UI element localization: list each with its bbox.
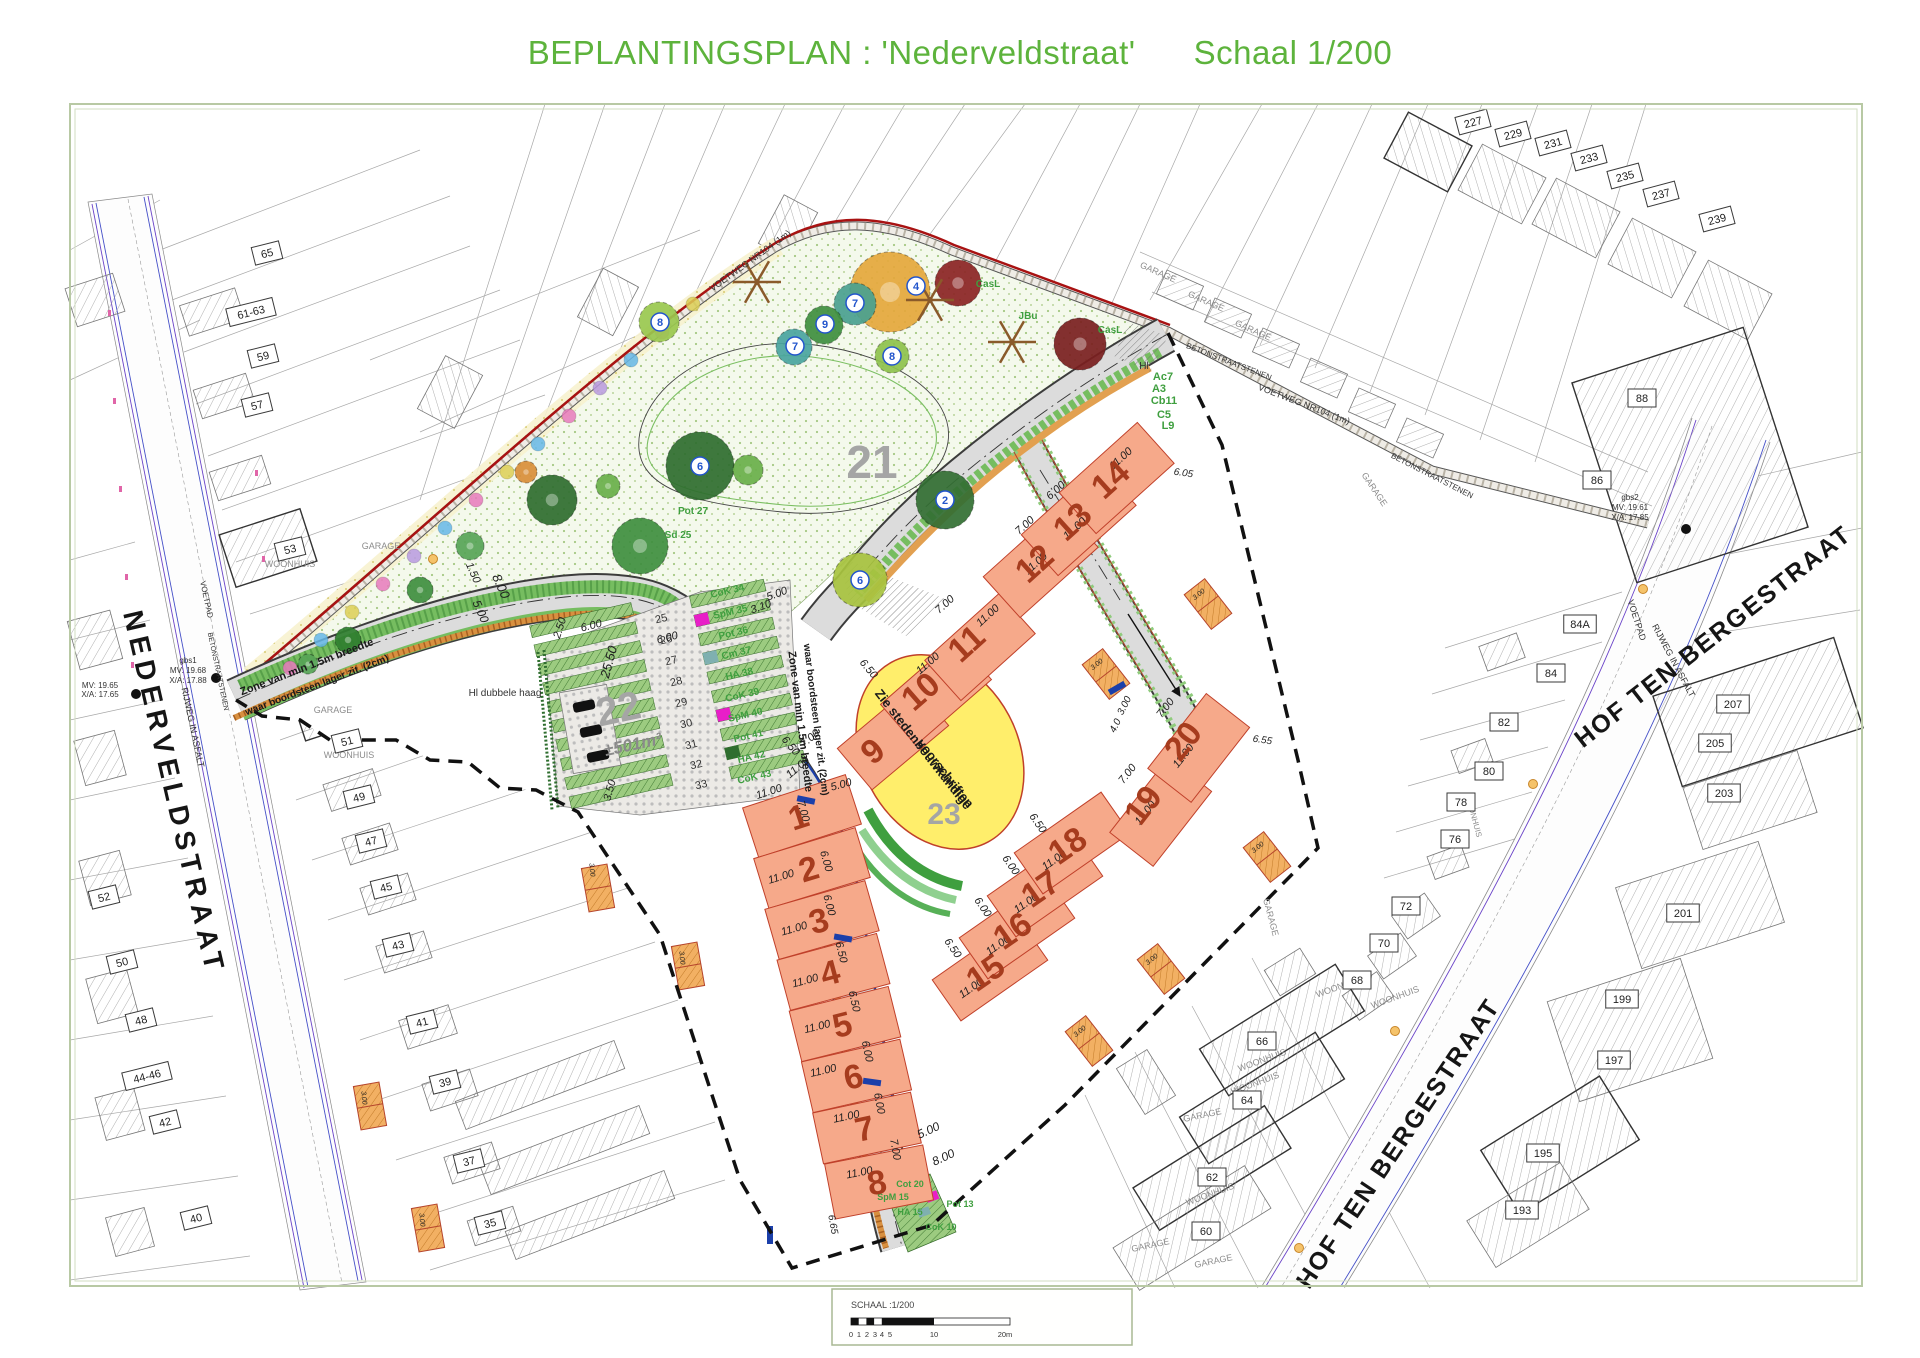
tree-icon bbox=[612, 518, 668, 574]
plan-label: GARAGE bbox=[1360, 471, 1390, 509]
shrub-icon bbox=[314, 633, 328, 647]
plan-label: 3.00 bbox=[417, 1213, 425, 1227]
parcel-number: 70 bbox=[1378, 938, 1390, 950]
benchmark-point bbox=[1681, 524, 1691, 534]
shrub-icon bbox=[531, 437, 545, 451]
tree-number-badge: 6 bbox=[851, 571, 869, 589]
shrub-icon bbox=[438, 521, 452, 535]
parcel-box: 227 bbox=[1455, 109, 1491, 135]
plan-label: 3.00 bbox=[587, 863, 595, 877]
scale-bar: SCHAAL :1/200 0123451020m bbox=[832, 1289, 1132, 1345]
plan-label: Hl dubbele haag bbox=[469, 688, 542, 699]
parcel-number: 84A bbox=[1570, 619, 1590, 631]
tree-center bbox=[546, 494, 559, 507]
garage-box bbox=[411, 1204, 444, 1252]
parcel-box: 70 bbox=[1370, 934, 1398, 952]
shrub-icon bbox=[407, 549, 421, 563]
tree-center bbox=[467, 543, 474, 550]
parcel-box: 197 bbox=[1598, 1051, 1631, 1069]
existing-building bbox=[95, 1088, 145, 1141]
existing-building bbox=[1300, 358, 1347, 398]
plan-label: 21 bbox=[846, 436, 897, 488]
tree-icon bbox=[515, 461, 537, 483]
plan-label: MV: 19.61 bbox=[1612, 503, 1649, 512]
parcel-number: 64 bbox=[1241, 1095, 1253, 1107]
parcel-number: 193 bbox=[1513, 1205, 1531, 1217]
parcel-box: 231 bbox=[1535, 130, 1571, 156]
tree-number-badge: 7 bbox=[846, 294, 864, 312]
scale-tick-label: 0 bbox=[849, 1330, 853, 1339]
parcel-box: 42 bbox=[149, 1110, 181, 1134]
tree-center bbox=[744, 466, 752, 474]
tree-center bbox=[605, 483, 611, 489]
plan-label: WOONHUIS bbox=[265, 559, 316, 569]
plan-label: HOF TEN BERGESTRAAT bbox=[1291, 993, 1506, 1293]
scale-tick-label: 4 bbox=[880, 1330, 884, 1339]
parcel-box: 207 bbox=[1717, 695, 1750, 713]
parcel-number: 82 bbox=[1498, 717, 1510, 729]
existing-building bbox=[1532, 178, 1620, 258]
tree-center bbox=[417, 587, 424, 594]
parcel-box: 40 bbox=[180, 1206, 212, 1230]
tree-number-badge: 2 bbox=[936, 491, 954, 509]
parcel-box: 235 bbox=[1607, 163, 1643, 189]
plan-label: 23 bbox=[927, 798, 960, 831]
survey-point bbox=[429, 555, 438, 564]
parcel-number: 88 bbox=[1636, 393, 1648, 405]
tree-number-badge: 8 bbox=[883, 347, 901, 365]
tree-icon bbox=[596, 474, 620, 498]
branch-center bbox=[1009, 339, 1015, 345]
plan-label: gbs2 bbox=[1621, 493, 1639, 502]
existing-building bbox=[577, 268, 638, 335]
parcel-box: 229 bbox=[1495, 121, 1531, 147]
parcel-box: 68 bbox=[1343, 971, 1371, 989]
shrub-icon bbox=[593, 381, 607, 395]
parcel-box: 201 bbox=[1667, 904, 1700, 922]
parcel-number: 86 bbox=[1591, 475, 1603, 487]
parcel-number: 199 bbox=[1613, 994, 1631, 1006]
plan-label: WOONHUIS bbox=[324, 750, 375, 760]
plan-label: MV: 19.68 bbox=[170, 666, 207, 675]
survey-point bbox=[1529, 780, 1538, 789]
parcel-box: 239 bbox=[1699, 206, 1735, 232]
plan-label: X/A: 17.65 bbox=[81, 690, 119, 699]
tree-center bbox=[1074, 338, 1087, 351]
tree-number-badge: 9 bbox=[816, 315, 834, 333]
scale-tick-label: 5 bbox=[888, 1330, 892, 1339]
tree-number-badge: 6 bbox=[691, 457, 709, 475]
shrub-icon bbox=[562, 409, 576, 423]
plan-label: Hl bbox=[1139, 361, 1148, 372]
site-plan-drawing: NEDERVELDSTRAATRIJWEG IN ASFALTVOETPADBE… bbox=[0, 0, 1920, 1358]
tree-center bbox=[523, 469, 529, 475]
survey-point bbox=[1639, 585, 1648, 594]
tree-number: 6 bbox=[697, 461, 703, 473]
shrub-icon bbox=[345, 605, 359, 619]
plan-label: MV: 19.65 bbox=[82, 681, 119, 690]
parcel-number: 72 bbox=[1400, 901, 1412, 913]
plan-label: Cb11 bbox=[1151, 395, 1177, 407]
parcel-box: 193 bbox=[1506, 1201, 1539, 1219]
parcel-box: 78 bbox=[1447, 793, 1475, 811]
plan-label: CoK 10 bbox=[925, 1222, 956, 1232]
plan-label: CasL bbox=[1098, 325, 1122, 336]
plan-label: 3.00 bbox=[359, 1091, 367, 1105]
branch-center bbox=[754, 279, 760, 285]
parcel-number: 80 bbox=[1483, 766, 1495, 778]
shrub-icon bbox=[500, 465, 514, 479]
parcel-number: 197 bbox=[1605, 1055, 1623, 1067]
tree-number-badge: 4 bbox=[907, 277, 925, 295]
parcel-number: 84 bbox=[1545, 668, 1557, 680]
plan-label: A3 bbox=[1152, 383, 1166, 395]
parcel-box: 84A bbox=[1564, 615, 1597, 633]
scale-tick-label: 10 bbox=[930, 1330, 938, 1339]
plan-label: 3.00 bbox=[677, 951, 685, 965]
tree-icon bbox=[456, 532, 484, 560]
existing-building bbox=[417, 356, 482, 429]
tree-center bbox=[880, 282, 900, 302]
parcel-number: 205 bbox=[1706, 738, 1724, 750]
existing-building bbox=[1116, 1050, 1175, 1115]
plan-label: Pot 13 bbox=[946, 1199, 973, 1209]
parcel-box: 88 bbox=[1628, 389, 1656, 407]
shrub-icon bbox=[469, 493, 483, 507]
tree-number: 7 bbox=[852, 298, 858, 310]
existing-building bbox=[480, 1106, 649, 1195]
tree-number: 8 bbox=[889, 351, 895, 363]
parcel-box: 50 bbox=[106, 950, 138, 974]
scale-tick-label: 20m bbox=[998, 1330, 1013, 1339]
plan-label: 22 bbox=[592, 683, 645, 735]
existing-building bbox=[67, 610, 122, 670]
parcel-number: 207 bbox=[1724, 699, 1742, 711]
plan-label: GARAGE bbox=[362, 541, 401, 551]
parcel-box: 64 bbox=[1233, 1091, 1261, 1109]
plan-label: L9 bbox=[1162, 420, 1175, 432]
plan-sheet: BEPLANTINGSPLAN : 'Nederveldstraat' Scha… bbox=[0, 0, 1920, 1358]
plan-label: CasL bbox=[976, 279, 1000, 290]
survey-point bbox=[1295, 1244, 1304, 1253]
utility-marker bbox=[119, 486, 122, 492]
parcel-box: 84 bbox=[1537, 664, 1565, 682]
tree-number: 7 bbox=[792, 341, 798, 353]
plan-label: gbs1 bbox=[179, 656, 197, 665]
parcel-box: 60 bbox=[1192, 1222, 1220, 1240]
parcel-box: 72 bbox=[1392, 897, 1420, 915]
plan-label: X/A: 17.88 bbox=[169, 676, 207, 685]
plan-label: GARAGE bbox=[1139, 260, 1178, 285]
plan-label: Pot 27 bbox=[678, 506, 708, 517]
tree-center bbox=[633, 539, 647, 553]
plan-label: Ac7 bbox=[1153, 371, 1173, 383]
existing-building bbox=[209, 455, 271, 501]
tree-number: 6 bbox=[857, 575, 863, 587]
existing-building bbox=[1427, 845, 1469, 880]
existing-building bbox=[74, 730, 126, 785]
tree-number: 8 bbox=[657, 317, 663, 329]
existing-building bbox=[106, 1208, 155, 1257]
plan-label: JBu bbox=[1019, 311, 1038, 322]
parcel-box: 237 bbox=[1643, 181, 1679, 207]
parcel-box: 76 bbox=[1441, 830, 1469, 848]
existing-building bbox=[1547, 958, 1713, 1101]
tree-number: 4 bbox=[913, 281, 920, 293]
plan-label: GARAGE bbox=[314, 705, 353, 715]
plan-label: GARAGE bbox=[1261, 897, 1281, 937]
tree-icon bbox=[407, 577, 433, 603]
parcel-box: 203 bbox=[1708, 784, 1741, 802]
plan-label: X/A: 17.85 bbox=[1611, 513, 1649, 522]
parcel-box: 80 bbox=[1475, 762, 1503, 780]
tree-number: 2 bbox=[942, 495, 948, 507]
parcel-box: 205 bbox=[1699, 734, 1732, 752]
parcel-number: 195 bbox=[1534, 1148, 1552, 1160]
parcel-box: 66 bbox=[1248, 1032, 1276, 1050]
scale-tick-label: 1 bbox=[857, 1330, 861, 1339]
parcel-number: 201 bbox=[1674, 908, 1692, 920]
existing-building bbox=[455, 1041, 624, 1130]
existing-building bbox=[1572, 327, 1808, 582]
tree-center bbox=[952, 277, 964, 289]
branch-center bbox=[927, 297, 933, 303]
scale-tick-label: 2 bbox=[865, 1330, 869, 1339]
existing-building bbox=[1608, 218, 1696, 298]
plan-label: Cot 20 bbox=[896, 1179, 924, 1189]
parcel-box: 59 bbox=[247, 344, 279, 368]
parcel-number: 62 bbox=[1206, 1172, 1218, 1184]
parcel-number: 66 bbox=[1256, 1036, 1268, 1048]
utility-marker bbox=[108, 310, 111, 316]
existing-building bbox=[1616, 841, 1785, 968]
parcel-number: 68 bbox=[1351, 975, 1363, 987]
tree-icon bbox=[733, 455, 763, 485]
existing-building bbox=[1458, 144, 1546, 224]
parcel-box: 199 bbox=[1606, 990, 1639, 1008]
survey-point bbox=[1391, 1027, 1400, 1036]
parcel-box: 86 bbox=[1583, 471, 1611, 489]
plan-label: GARAGE bbox=[1193, 1252, 1233, 1270]
shrub-icon bbox=[686, 297, 700, 311]
parcel-number: 203 bbox=[1715, 788, 1733, 800]
parcel-box: 82 bbox=[1490, 713, 1518, 731]
existing-building bbox=[1684, 260, 1772, 340]
parcel-box: 44-46 bbox=[122, 1062, 172, 1091]
parcel-box: 233 bbox=[1571, 145, 1607, 171]
tree-icon bbox=[527, 475, 577, 525]
scale-tick-label: 3 bbox=[873, 1330, 877, 1339]
parcel-box: 62 bbox=[1198, 1168, 1226, 1186]
tree-number-badge: 8 bbox=[651, 313, 669, 331]
existing-building bbox=[505, 1171, 674, 1260]
shrub-icon bbox=[624, 353, 638, 367]
garage-box bbox=[353, 1082, 386, 1130]
tree-center bbox=[345, 637, 352, 644]
parcel-box: 65 bbox=[251, 241, 283, 265]
garage-box bbox=[581, 864, 614, 912]
existing-building bbox=[1348, 388, 1395, 428]
tree-number-badge: 7 bbox=[786, 337, 804, 355]
shrub-icon bbox=[376, 577, 390, 591]
existing-building bbox=[1479, 633, 1525, 671]
utility-marker bbox=[125, 574, 128, 580]
utility-marker bbox=[255, 470, 258, 476]
parcel-number: 78 bbox=[1455, 797, 1467, 809]
tree-number: 9 bbox=[822, 319, 828, 331]
parcel-box: 195 bbox=[1527, 1144, 1560, 1162]
plan-label: HA 15 bbox=[897, 1207, 922, 1217]
parcel-number: 76 bbox=[1449, 834, 1461, 846]
scale-bar-label: SCHAAL :1/200 bbox=[851, 1300, 914, 1310]
utility-marker bbox=[113, 398, 116, 404]
parcel-number: 60 bbox=[1200, 1226, 1212, 1238]
plan-label: Sd 25 bbox=[665, 530, 692, 541]
